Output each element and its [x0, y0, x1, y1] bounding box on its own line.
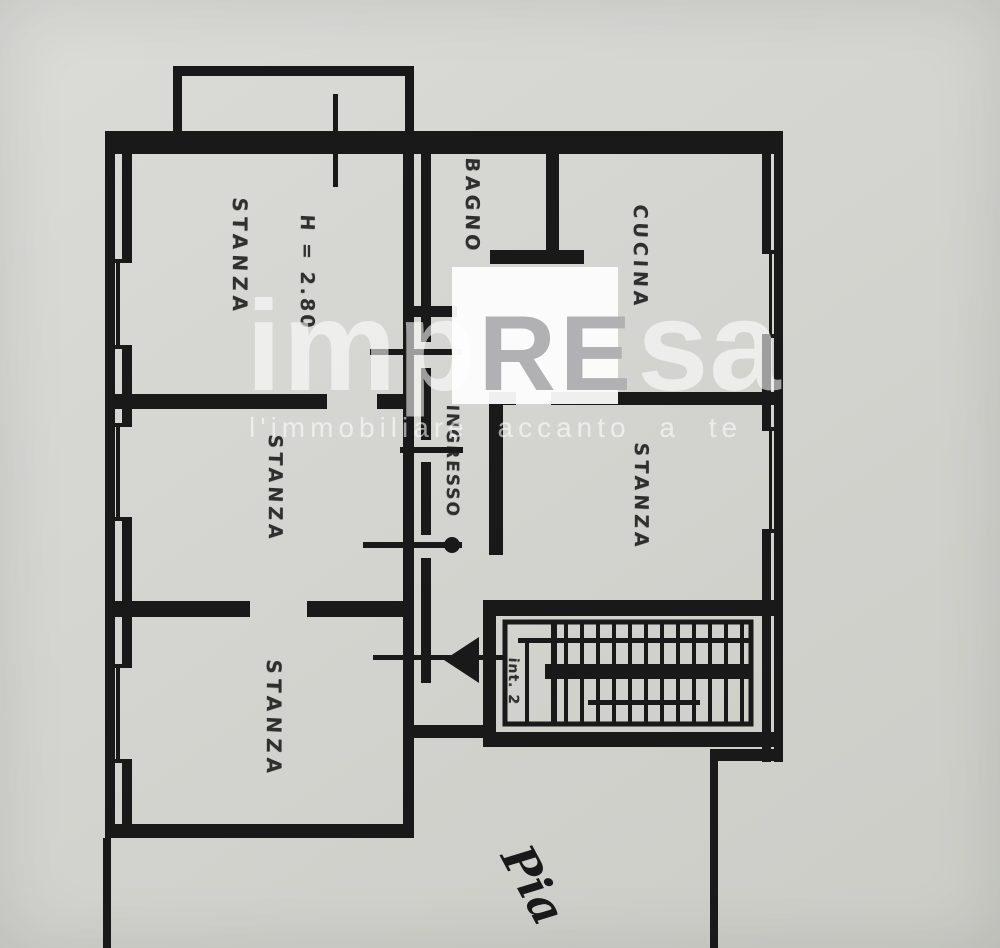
room-label-stanza-middle-left: STANZA [264, 434, 286, 543]
stair-unit-label: int. 2 [505, 657, 521, 705]
ceiling-height-label: H = 2.80 [296, 214, 318, 331]
watermark-logo-block [452, 267, 618, 404]
scanned-floorplan-page: STANZA H = 2.80 BAGNO CUCINA INGRESSO ST… [0, 0, 1000, 948]
balcony-outline [173, 66, 414, 187]
room-label-stanza-top-left: STANZA [228, 197, 252, 317]
room-label-stanza-bottom-left: STANZA [262, 659, 286, 779]
watermark-tagline: l'immobiliare accanto a te [249, 412, 742, 444]
interior-walls [105, 131, 774, 838]
room-label-cucina: CUCINA [629, 204, 651, 310]
floorplan-drawing [0, 0, 1000, 948]
room-label-bagno: BAGNO [461, 157, 483, 255]
room-label-stanza-right: STANZA [630, 442, 652, 551]
